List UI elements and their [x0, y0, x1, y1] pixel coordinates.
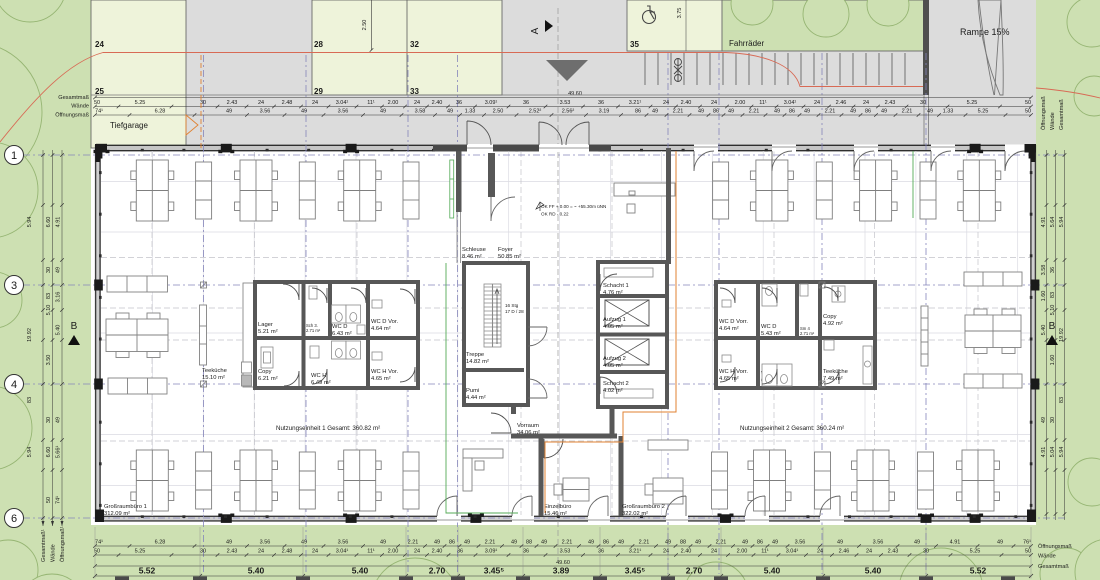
svg-text:5.10: 5.10 [1050, 305, 1056, 316]
svg-text:16 Stg: 16 Stg [505, 303, 519, 308]
svg-text:49: 49 [447, 109, 453, 115]
svg-text:49: 49 [881, 109, 887, 115]
svg-text:3.19: 3.19 [599, 109, 610, 115]
svg-text:36: 36 [523, 549, 529, 555]
svg-text:Schleuse: Schleuse [462, 247, 486, 253]
svg-text:24: 24 [258, 100, 264, 106]
svg-text:17 D / 28: 17 D / 28 [505, 309, 524, 314]
svg-text:24: 24 [414, 549, 420, 555]
svg-text:11¹: 11¹ [759, 100, 767, 106]
svg-text:3.56: 3.56 [338, 109, 349, 115]
svg-text:49: 49 [541, 540, 547, 546]
svg-text:2.00: 2.00 [737, 549, 748, 555]
svg-text:30: 30 [1050, 417, 1056, 423]
svg-text:2.21: 2.21 [902, 109, 913, 115]
svg-text:WC D: WC D [761, 324, 776, 330]
svg-text:88: 88 [680, 540, 686, 546]
svg-text:49: 49 [226, 540, 232, 546]
svg-text:3.45⁵: 3.45⁵ [625, 566, 646, 576]
svg-text:B: B [1049, 321, 1056, 332]
svg-text:74¹: 74¹ [56, 496, 62, 504]
svg-text:24: 24 [814, 100, 820, 106]
svg-text:50.85 m²: 50.85 m² [498, 254, 521, 260]
svg-text:24: 24 [711, 100, 717, 106]
svg-text:5.94: 5.94 [27, 447, 33, 458]
svg-text:49: 49 [914, 540, 920, 546]
svg-text:Öffnungsmaß: Öffnungsmaß [55, 112, 89, 119]
svg-text:50: 50 [46, 497, 52, 503]
svg-text:49: 49 [774, 109, 780, 115]
svg-text:4.91: 4.91 [56, 217, 62, 228]
svg-text:4.65 m²: 4.65 m² [371, 376, 391, 382]
svg-text:4.91: 4.91 [1041, 217, 1047, 228]
svg-text:4.91: 4.91 [1041, 447, 1047, 458]
svg-text:6.28: 6.28 [155, 540, 166, 546]
svg-text:2.46: 2.46 [839, 549, 850, 555]
svg-text:3.21¹: 3.21¹ [629, 100, 642, 106]
svg-text:Tiefgarage: Tiefgarage [110, 121, 149, 130]
svg-text:Schacht 2: Schacht 2 [603, 381, 629, 387]
svg-text:Schacht 1: Schacht 1 [603, 283, 629, 289]
svg-text:4.92 m²: 4.92 m² [823, 321, 843, 327]
svg-text:24: 24 [711, 549, 717, 555]
svg-text:19.92: 19.92 [1059, 328, 1065, 342]
svg-text:3.53: 3.53 [560, 100, 571, 106]
svg-text:5.25: 5.25 [970, 549, 981, 555]
svg-text:5.64: 5.64 [1050, 217, 1056, 228]
svg-text:6: 6 [11, 513, 17, 525]
svg-text:4.91: 4.91 [950, 540, 961, 546]
svg-text:2.70: 2.70 [686, 566, 703, 576]
svg-text:49: 49 [837, 540, 843, 546]
svg-text:49: 49 [588, 540, 594, 546]
svg-text:50: 50 [1025, 549, 1031, 555]
svg-text:1: 1 [11, 150, 17, 162]
svg-text:Aufzug 1: Aufzug 1 [603, 317, 626, 323]
svg-text:49: 49 [804, 109, 810, 115]
svg-text:35: 35 [630, 40, 639, 49]
svg-text:49: 49 [56, 267, 62, 273]
svg-text:Treppe: Treppe [466, 352, 484, 358]
svg-text:49.60: 49.60 [568, 91, 582, 97]
svg-text:36: 36 [523, 100, 529, 106]
svg-text:Einzelbüro: Einzelbüro [544, 504, 571, 510]
svg-text:24: 24 [663, 100, 669, 106]
svg-text:3.58: 3.58 [415, 109, 426, 115]
svg-text:2.40: 2.40 [432, 549, 443, 555]
svg-text:5.94: 5.94 [1059, 217, 1065, 228]
svg-text:34.06 m²: 34.06 m² [517, 430, 540, 436]
svg-text:Teeküche: Teeküche [202, 368, 227, 374]
svg-text:86: 86 [449, 540, 455, 546]
svg-text:Gesamtmaß: Gesamtmaß [1059, 99, 1065, 130]
svg-text:86: 86 [757, 540, 763, 546]
svg-text:36: 36 [598, 549, 604, 555]
svg-text:Aufzug 2: Aufzug 2 [603, 356, 626, 362]
svg-text:30: 30 [46, 417, 52, 423]
svg-text:3.45⁵: 3.45⁵ [484, 566, 505, 576]
svg-text:2.00: 2.00 [388, 100, 399, 106]
svg-text:1.33: 1.33 [465, 109, 476, 115]
svg-text:30: 30 [46, 267, 52, 273]
svg-text:24: 24 [95, 40, 104, 49]
svg-text:49: 49 [997, 540, 1003, 546]
svg-text:2.43: 2.43 [227, 549, 238, 555]
svg-text:11¹: 11¹ [367, 549, 375, 555]
svg-text:3.09¹: 3.09¹ [485, 100, 498, 106]
svg-text:24: 24 [258, 549, 264, 555]
svg-text:2.71 m²: 2.71 m² [800, 331, 815, 336]
svg-text:49: 49 [226, 109, 232, 115]
svg-text:15.46 m²: 15.46 m² [544, 511, 567, 517]
svg-text:49: 49 [695, 540, 701, 546]
svg-text:86: 86 [635, 109, 641, 115]
svg-text:1.60: 1.60 [1041, 291, 1047, 302]
svg-text:88: 88 [526, 540, 532, 546]
svg-text:4.44 m²: 4.44 m² [466, 395, 486, 401]
svg-text:36: 36 [1050, 267, 1056, 273]
svg-text:24: 24 [863, 100, 869, 106]
svg-text:OK RD - 0.22: OK RD - 0.22 [541, 212, 569, 217]
svg-text:5.40: 5.40 [56, 325, 62, 336]
svg-text:Öffnungsmaß: Öffnungsmaß [1040, 96, 1047, 130]
svg-text:5.52: 5.52 [970, 566, 987, 576]
svg-text:2.43: 2.43 [227, 100, 238, 106]
svg-text:5.21 m²: 5.21 m² [258, 329, 278, 335]
svg-text:86: 86 [713, 109, 719, 115]
svg-text:3.21¹: 3.21¹ [629, 549, 642, 555]
svg-text:2.48: 2.48 [282, 100, 293, 106]
svg-text:Gesamtmaß: Gesamtmaß [58, 95, 89, 101]
svg-text:83: 83 [1050, 292, 1056, 298]
svg-text:49: 49 [728, 109, 734, 115]
svg-text:49: 49 [850, 109, 856, 115]
svg-text:5.40: 5.40 [1041, 325, 1047, 336]
svg-text:3.56: 3.56 [873, 540, 884, 546]
svg-text:Copy: Copy [823, 314, 837, 320]
svg-text:2.21: 2.21 [408, 540, 419, 546]
svg-text:Teeküche: Teeküche [823, 369, 848, 375]
svg-text:11¹: 11¹ [761, 549, 769, 555]
svg-text:3.89: 3.89 [553, 566, 570, 576]
svg-text:Foyer: Foyer [498, 247, 513, 253]
svg-text:2.00: 2.00 [735, 100, 746, 106]
svg-text:36: 36 [456, 100, 462, 106]
svg-text:3.53: 3.53 [560, 549, 571, 555]
svg-text:5.40: 5.40 [352, 566, 369, 576]
svg-text:5.25: 5.25 [967, 100, 978, 106]
svg-text:49: 49 [698, 109, 704, 115]
svg-text:30: 30 [200, 549, 206, 555]
svg-text:49: 49 [772, 540, 778, 546]
svg-text:49: 49 [511, 540, 517, 546]
svg-text:3.56: 3.56 [260, 109, 271, 115]
svg-text:2.70: 2.70 [429, 566, 446, 576]
svg-text:24: 24 [866, 549, 872, 555]
svg-text:5.25: 5.25 [135, 549, 146, 555]
svg-text:5.94: 5.94 [27, 217, 33, 228]
svg-text:86: 86 [789, 109, 795, 115]
svg-text:5.25: 5.25 [978, 109, 989, 115]
svg-text:49: 49 [434, 540, 440, 546]
svg-text:83: 83 [46, 293, 52, 299]
svg-text:2.40: 2.40 [432, 100, 443, 106]
svg-text:30: 30 [920, 100, 926, 106]
svg-text:6.60: 6.60 [46, 217, 52, 228]
svg-text:6.60: 6.60 [46, 447, 52, 458]
svg-text:4.76 m²: 4.76 m² [603, 290, 623, 296]
svg-text:Rampe 15%: Rampe 15% [960, 27, 1010, 37]
svg-text:Gesamtmaß¹: Gesamtmaß¹ [41, 529, 47, 562]
svg-text:49: 49 [380, 109, 386, 115]
svg-text:2.50: 2.50 [362, 20, 368, 31]
svg-text:Lager: Lager [258, 322, 273, 328]
svg-text:2.52²: 2.52² [529, 109, 542, 115]
svg-text:Wände: Wände [71, 104, 89, 110]
svg-text:1.33: 1.33 [943, 109, 954, 115]
svg-text:74¹: 74¹ [95, 109, 103, 115]
svg-text:74¹: 74¹ [95, 540, 103, 546]
svg-text:49: 49 [1041, 417, 1047, 423]
svg-text:6.43 m²: 6.43 m² [332, 331, 352, 337]
svg-text:2.46: 2.46 [836, 100, 847, 106]
svg-text:312.09 m²: 312.09 m² [104, 511, 130, 517]
svg-text:3.04¹: 3.04¹ [336, 100, 349, 106]
svg-text:2.56²: 2.56² [562, 109, 575, 115]
svg-text:14.82 m²: 14.82 m² [466, 359, 489, 365]
svg-text:49: 49 [301, 109, 307, 115]
svg-text:2.50: 2.50 [493, 109, 504, 115]
svg-text:WC D: WC D [332, 324, 347, 330]
svg-text:24: 24 [817, 549, 823, 555]
svg-text:8.46 m²: 8.46 m² [462, 254, 482, 260]
svg-text:Wände: Wände [1038, 554, 1056, 560]
svg-text:Copy: Copy [258, 369, 272, 375]
svg-text:3.56: 3.56 [795, 540, 806, 546]
svg-text:83: 83 [27, 397, 33, 403]
svg-text:Gesamtmaß: Gesamtmaß [1038, 564, 1069, 570]
svg-text:Wände: Wände [51, 544, 57, 562]
svg-text:3.04¹: 3.04¹ [786, 549, 799, 555]
svg-text:3.58: 3.58 [1041, 265, 1047, 276]
svg-text:2.43: 2.43 [888, 549, 899, 555]
svg-text:2.21: 2.21 [749, 109, 760, 115]
svg-text:49: 49 [464, 540, 470, 546]
svg-text:Großraumbüro 1: Großraumbüro 1 [104, 504, 147, 510]
svg-text:Öffnungsmaß¹: Öffnungsmaß¹ [59, 526, 66, 562]
svg-text:49: 49 [742, 540, 748, 546]
svg-text:Pumi: Pumi [466, 388, 479, 394]
svg-text:A: A [530, 27, 541, 34]
svg-text:50: 50 [1025, 109, 1031, 115]
svg-text:4: 4 [11, 379, 17, 391]
svg-text:49: 49 [56, 417, 62, 423]
svg-text:WC D Vorr.: WC D Vorr. [719, 319, 748, 325]
svg-text:49: 49 [927, 109, 933, 115]
svg-text:4.05 m²: 4.05 m² [603, 363, 623, 369]
svg-text:49: 49 [380, 540, 386, 546]
svg-text:1.60: 1.60 [1050, 355, 1056, 366]
svg-text:28: 28 [314, 40, 323, 49]
svg-text:3.04¹: 3.04¹ [336, 549, 349, 555]
svg-text:50: 50 [94, 100, 100, 106]
svg-text:3.09¹: 3.09¹ [485, 549, 498, 555]
svg-text:322.02 m²: 322.02 m² [622, 511, 648, 517]
svg-text:2.71 m²: 2.71 m² [306, 328, 321, 333]
svg-text:83: 83 [1059, 397, 1065, 403]
svg-text:Nutzungseinheit 2 Gesamt: 360.: Nutzungseinheit 2 Gesamt: 360.24 m² [740, 425, 844, 432]
svg-text:3.75: 3.75 [677, 8, 683, 19]
svg-text:Vorraum: Vorraum [517, 423, 539, 429]
svg-text:49: 49 [301, 540, 307, 546]
svg-text:3.50: 3.50 [46, 355, 52, 366]
svg-text:11¹: 11¹ [367, 100, 375, 106]
svg-text:24: 24 [312, 549, 318, 555]
svg-text:2.21: 2.21 [639, 540, 650, 546]
svg-text:3.56: 3.56 [260, 540, 271, 546]
svg-text:2.40: 2.40 [681, 549, 692, 555]
svg-text:49: 49 [652, 109, 658, 115]
svg-text:4.05 m²: 4.05 m² [603, 324, 623, 330]
svg-text:3.16: 3.16 [56, 292, 62, 303]
svg-text:Nutzungseinheit 1 Gesamt: 360.: Nutzungseinheit 1 Gesamt: 360.82 m² [276, 425, 380, 432]
svg-text:2.21: 2.21 [825, 109, 836, 115]
svg-text:2.43: 2.43 [885, 100, 896, 106]
svg-text:5.40: 5.40 [764, 566, 781, 576]
svg-text:5.25: 5.25 [135, 100, 146, 106]
svg-text:3: 3 [11, 280, 17, 292]
svg-text:OK FF + 0.00 = ~ +55.30m üNN: OK FF + 0.00 = ~ +55.30m üNN [541, 204, 606, 209]
svg-text:WC H Vor.: WC H Vor. [371, 369, 398, 375]
svg-text:3.56: 3.56 [338, 540, 349, 546]
svg-text:5.40: 5.40 [248, 566, 265, 576]
svg-text:WC D Vor.: WC D Vor. [371, 319, 398, 325]
svg-text:5.66¹: 5.66¹ [56, 446, 62, 459]
svg-text:Großraumbüro 2: Großraumbüro 2 [622, 504, 665, 510]
svg-text:76¹: 76¹ [1023, 540, 1031, 546]
svg-text:5.43 m²: 5.43 m² [761, 331, 781, 337]
svg-text:2.21: 2.21 [485, 540, 496, 546]
svg-text:5.10: 5.10 [46, 305, 52, 316]
svg-text:2.00: 2.00 [388, 549, 399, 555]
svg-text:2.21: 2.21 [562, 540, 573, 546]
svg-text:Fahrräder: Fahrräder [729, 39, 764, 48]
svg-text:50: 50 [1025, 100, 1031, 106]
svg-text:B: B [71, 321, 78, 332]
svg-text:4.02 m²: 4.02 m² [603, 388, 623, 394]
svg-text:15.10 m²: 15.10 m² [202, 375, 225, 381]
svg-text:6.28: 6.28 [155, 109, 166, 115]
svg-text:2.40: 2.40 [681, 100, 692, 106]
svg-text:32: 32 [410, 40, 419, 49]
svg-text:4.64 m²: 4.64 m² [719, 326, 739, 332]
svg-text:2.48: 2.48 [282, 549, 293, 555]
svg-text:2.21: 2.21 [673, 109, 684, 115]
svg-text:5.40: 5.40 [865, 566, 882, 576]
svg-text:5.52: 5.52 [139, 566, 156, 576]
svg-text:Öffnungsmaß: Öffnungsmaß [1038, 543, 1072, 550]
svg-text:86: 86 [603, 540, 609, 546]
svg-text:5.94: 5.94 [1059, 447, 1065, 458]
svg-text:24: 24 [312, 100, 318, 106]
svg-text:86: 86 [865, 109, 871, 115]
svg-text:6.21 m²: 6.21 m² [258, 376, 278, 382]
svg-text:24: 24 [414, 100, 420, 106]
svg-text:49: 49 [618, 540, 624, 546]
svg-text:Wände: Wände [1050, 112, 1056, 130]
svg-text:36: 36 [598, 100, 604, 106]
svg-text:5.04: 5.04 [1050, 447, 1056, 458]
svg-text:4.64 m²: 4.64 m² [371, 326, 391, 332]
svg-text:19.92: 19.92 [27, 328, 33, 342]
svg-text:3.04¹: 3.04¹ [784, 100, 797, 106]
